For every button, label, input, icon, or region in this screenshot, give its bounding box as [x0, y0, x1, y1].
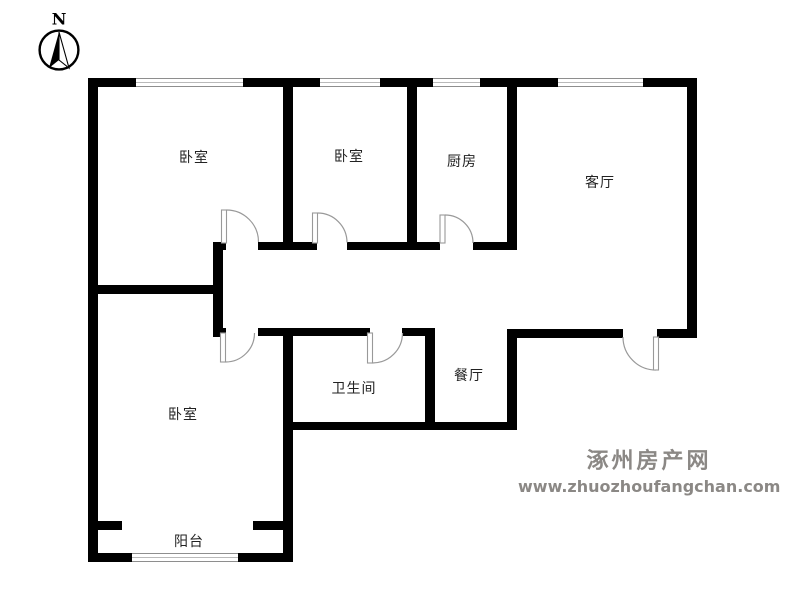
- room-label-bathroom: 卫生间: [332, 378, 377, 398]
- door-swing-arc: [445, 215, 473, 243]
- door-swing-arc: [318, 213, 348, 243]
- door-layer: [0, 0, 800, 600]
- floor-plan: N 卧室 卧室 厨房 客厅 卫生间 餐厅 卧室 阳台 涿州房产网 www.zhu…: [0, 0, 800, 600]
- door-leaf: [440, 215, 445, 243]
- door-swing-arc: [623, 337, 656, 370]
- door-leaf: [368, 333, 373, 363]
- watermark: 涿州房产网 www.zhuozhoufangchan.com: [518, 451, 780, 495]
- door-swing-arc: [226, 333, 255, 362]
- room-label-bedroom-2: 卧室: [334, 146, 364, 166]
- door-swing-arc: [373, 333, 403, 363]
- room-label-kitchen: 厨房: [447, 151, 477, 171]
- room-label-bedroom-1: 卧室: [179, 147, 209, 167]
- room-label-balcony: 阳台: [174, 531, 204, 551]
- room-label-dining-room: 餐厅: [454, 365, 484, 385]
- watermark-site-url: www.zhuozhoufangchan.com: [518, 479, 780, 495]
- watermark-site-name: 涿州房产网: [518, 451, 780, 473]
- door-leaf: [654, 337, 659, 370]
- room-label-bedroom-3: 卧室: [168, 404, 198, 424]
- door-leaf: [313, 213, 318, 243]
- door-swing-arc: [227, 210, 259, 242]
- door-leaf: [221, 333, 226, 362]
- door-leaf: [222, 210, 227, 243]
- room-label-living-room: 客厅: [585, 172, 615, 192]
